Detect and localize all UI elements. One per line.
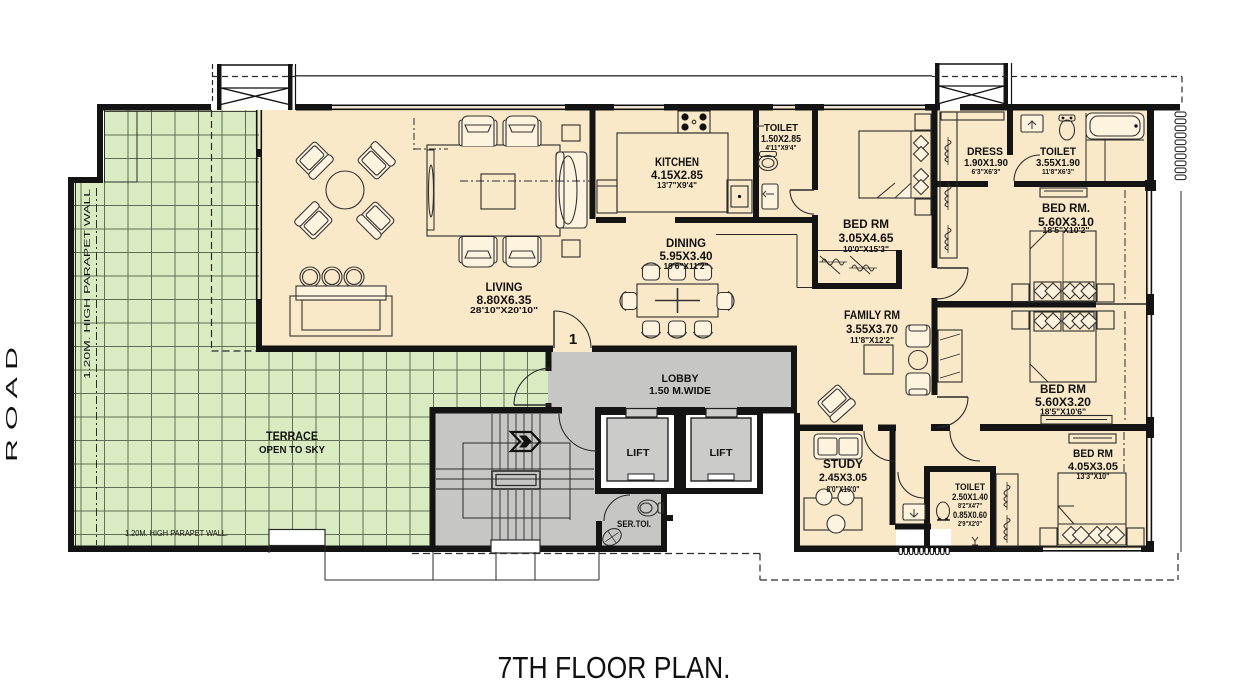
svg-text:BED RM: BED RM <box>1073 448 1113 460</box>
svg-text:BED RM: BED RM <box>1040 382 1086 396</box>
svg-text:R O A D: R O A D <box>4 347 21 462</box>
svg-text:19'6"X11'2": 19'6"X11'2" <box>664 261 709 271</box>
svg-text:KITCHEN: KITCHEN <box>655 155 699 169</box>
svg-text:10'0"X15'3": 10'0"X15'3" <box>843 244 889 254</box>
svg-text:LIFT: LIFT <box>710 447 734 459</box>
svg-text:2.50X1.40: 2.50X1.40 <box>952 492 988 502</box>
svg-text:LOBBY: LOBBY <box>662 373 700 385</box>
svg-text:2.45X3.05: 2.45X3.05 <box>819 472 867 484</box>
svg-text:2'9"X2'0": 2'9"X2'0" <box>958 521 982 528</box>
svg-text:TERRACE: TERRACE <box>266 429 318 443</box>
svg-text:OPEN TO SKY: OPEN TO SKY <box>259 444 325 456</box>
svg-text:1.20M. HIGH PARAPET WALL: 1.20M. HIGH PARAPET WALL <box>83 188 92 379</box>
svg-text:0.85X0.60: 0.85X0.60 <box>953 510 987 520</box>
svg-text:8'0"X10'0": 8'0"X10'0" <box>827 485 860 494</box>
svg-text:1: 1 <box>569 331 577 348</box>
svg-text:18'5"X10'2": 18'5"X10'2" <box>1043 225 1090 235</box>
svg-text:1.20M. HIGH PARAPET WALL.: 1.20M. HIGH PARAPET WALL. <box>125 528 228 538</box>
svg-text:BED RM: BED RM <box>843 217 889 231</box>
svg-text:FAMILY RM: FAMILY RM <box>844 308 900 322</box>
svg-text:11'8"X12'2": 11'8"X12'2" <box>850 335 894 345</box>
svg-text:6'3"X6'3": 6'3"X6'3" <box>972 167 1001 176</box>
svg-text:LIFT: LIFT <box>627 447 651 459</box>
svg-text:1.50 M.WIDE: 1.50 M.WIDE <box>649 385 711 397</box>
svg-text:DINING: DINING <box>666 236 706 250</box>
svg-text:11'8"X6'3": 11'8"X6'3" <box>1042 167 1074 176</box>
svg-text:13'3"X10": 13'3"X10" <box>1077 472 1110 481</box>
svg-text:LIVING: LIVING <box>486 280 523 294</box>
svg-text:3.55X3.70: 3.55X3.70 <box>846 322 898 336</box>
svg-text:BED RM.: BED RM. <box>1042 201 1090 215</box>
svg-text:3.05X4.65: 3.05X4.65 <box>839 231 894 245</box>
svg-text:18'5"X10'6": 18'5"X10'6" <box>1040 407 1086 417</box>
svg-text:8'2"X4'7": 8'2"X4'7" <box>958 503 982 510</box>
svg-text:SER.TOI.: SER.TOI. <box>617 519 651 529</box>
svg-text:28'10"X20'10": 28'10"X20'10" <box>470 305 538 315</box>
svg-text:13'7"X9'4": 13'7"X9'4" <box>657 180 697 190</box>
svg-text:STUDY: STUDY <box>823 457 863 471</box>
svg-text:7TH FLOOR PLAN.: 7TH FLOOR PLAN. <box>498 650 731 685</box>
svg-text:4'11"X9'4": 4'11"X9'4" <box>766 143 797 152</box>
